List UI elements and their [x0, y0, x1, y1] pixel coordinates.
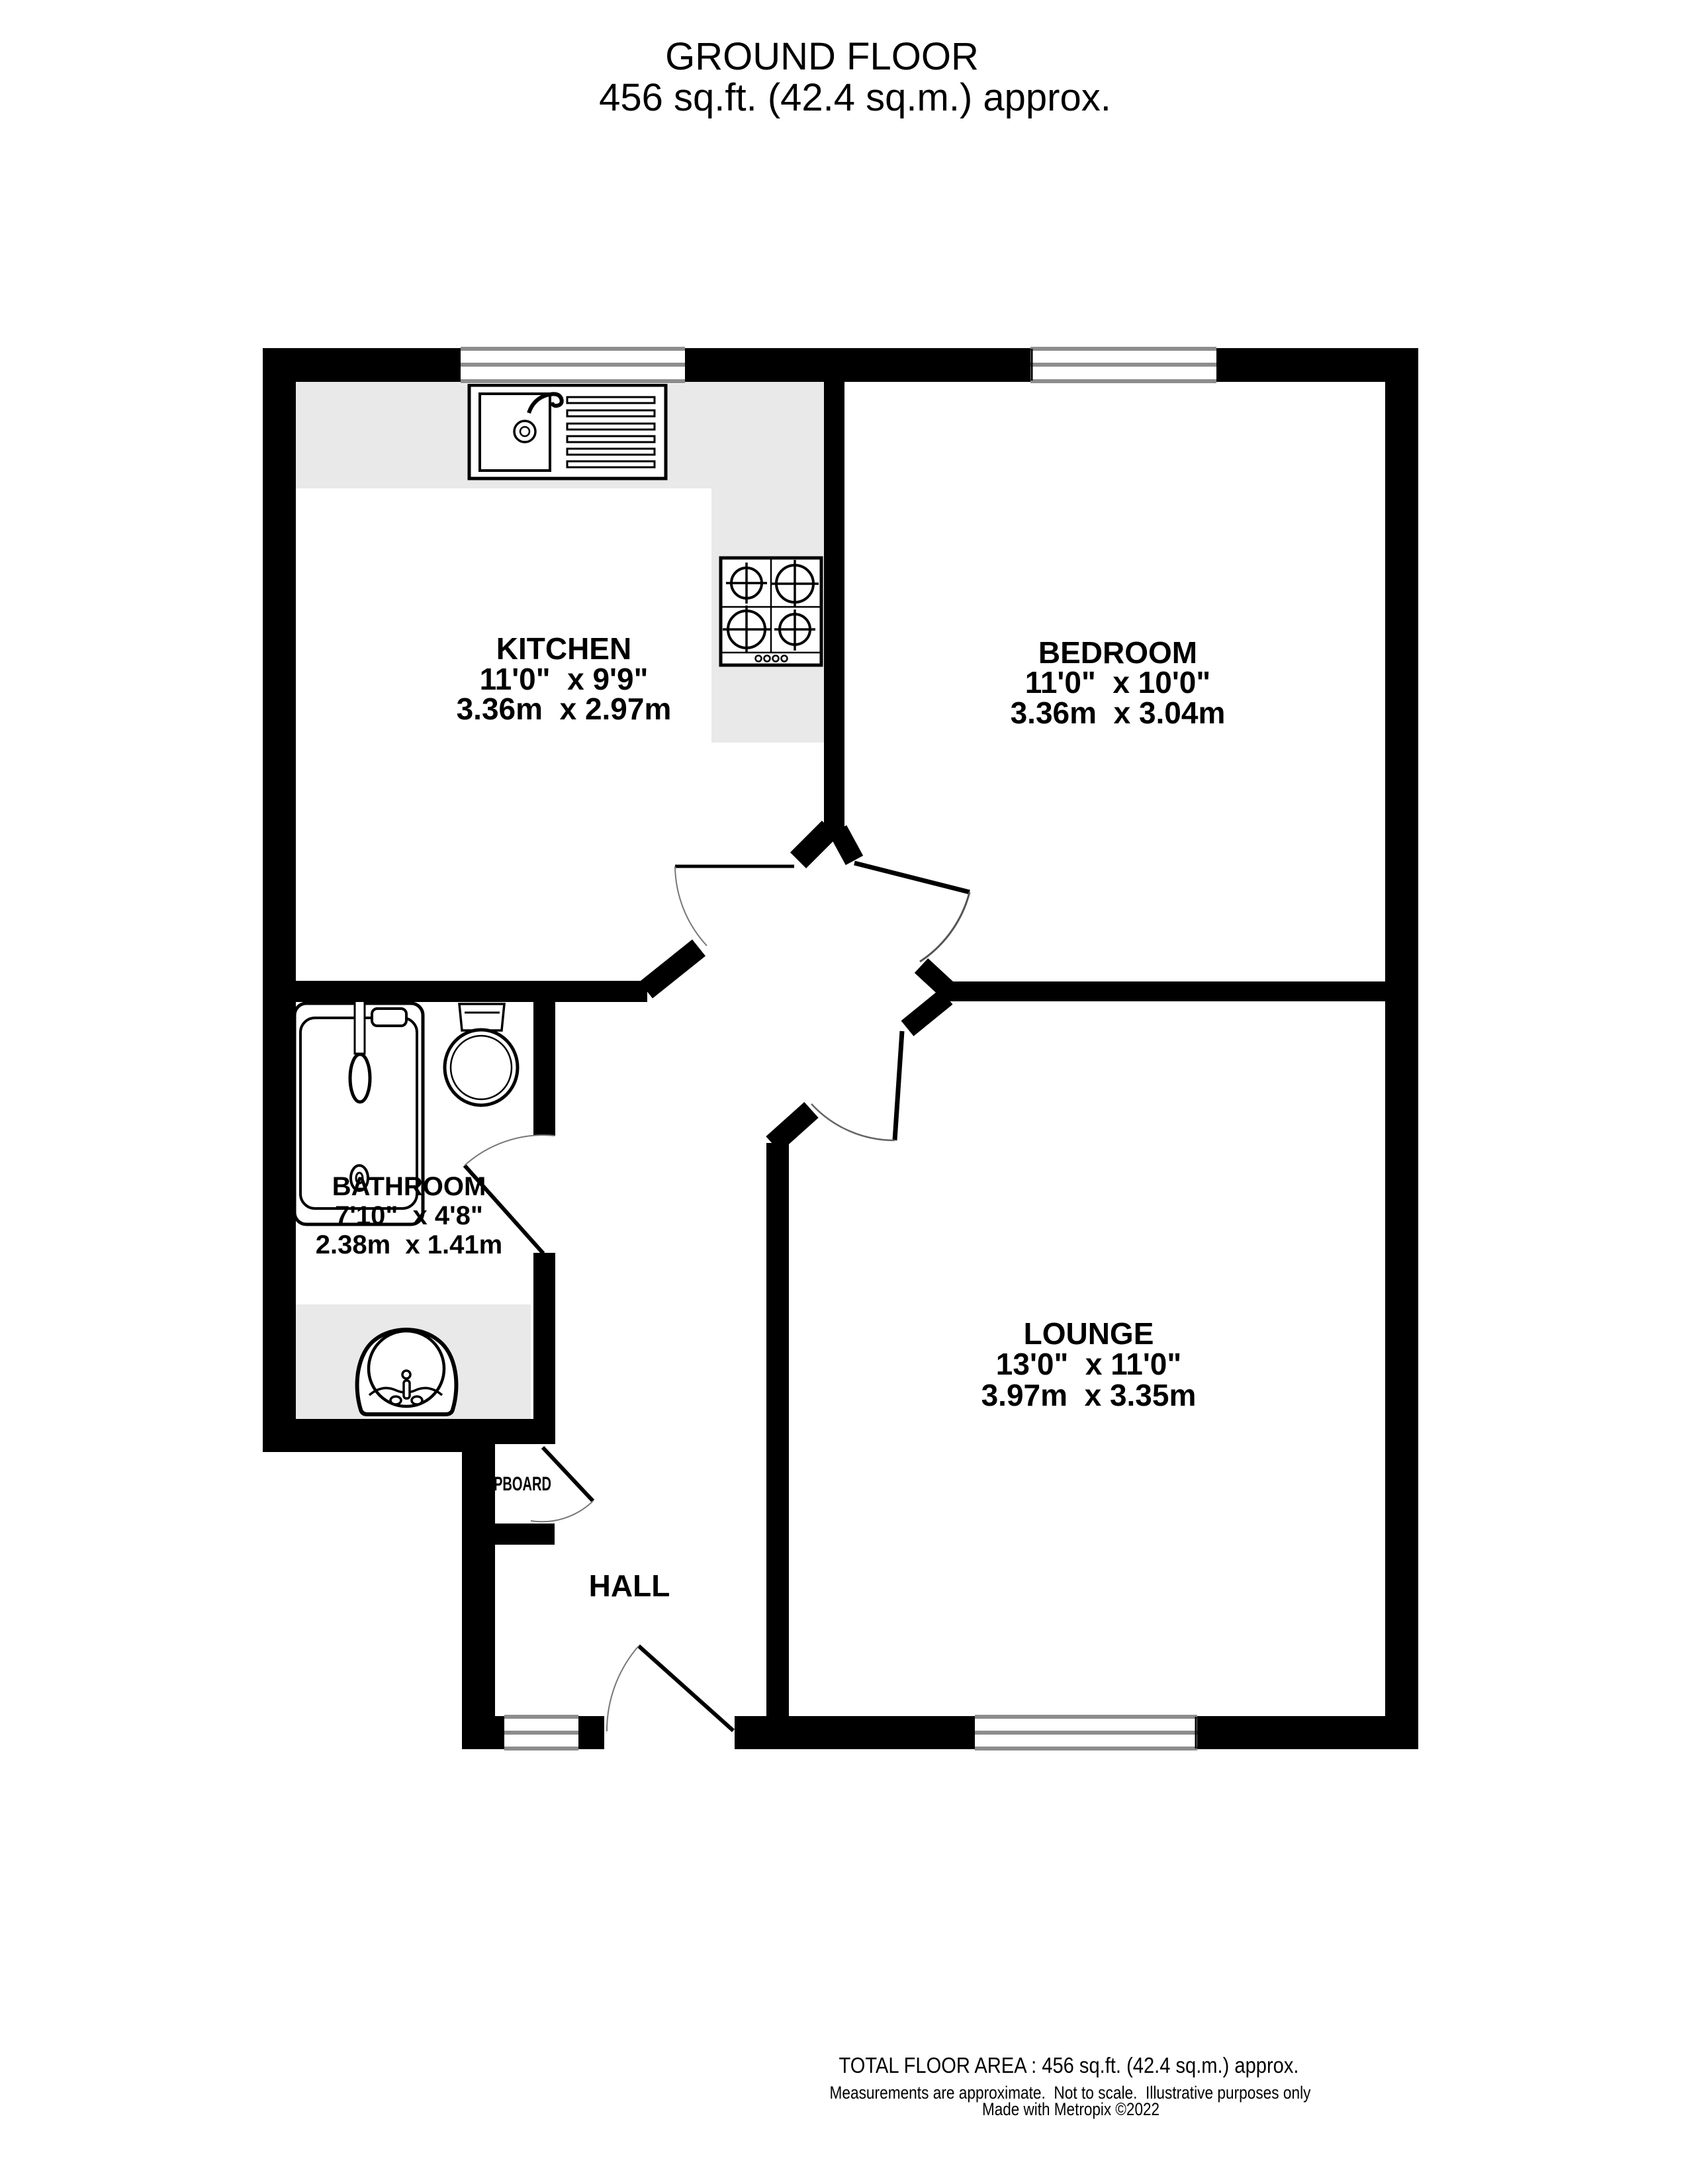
svg-text:Made with Metropix ©2022: Made with Metropix ©2022 — [982, 2099, 1159, 2119]
svg-text:3.36m x 2.97m: 3.36m x 2.97m — [457, 692, 672, 726]
svg-text:BATHROOM: BATHROOM — [332, 1172, 486, 1201]
svg-text:HALL: HALL — [589, 1569, 670, 1603]
svg-text:PBOARD: PBOARD — [494, 1473, 551, 1495]
svg-text:7'10" x 4'8": 7'10" x 4'8" — [335, 1201, 483, 1230]
svg-text:13'0" x 11'0": 13'0" x 11'0" — [996, 1347, 1181, 1381]
svg-text:TOTAL FLOOR AREA : 456 sq.ft.: TOTAL FLOOR AREA : 456 sq.ft. (42.4 sq.m… — [839, 2053, 1299, 2077]
svg-text:456 sq.ft. (42.4 sq.m.) approx: 456 sq.ft. (42.4 sq.m.) approx. — [599, 76, 1111, 119]
svg-text:3.97m x 3.35m: 3.97m x 3.35m — [981, 1378, 1197, 1412]
svg-text:GROUND FLOOR: GROUND FLOOR — [665, 35, 979, 78]
svg-text:11'0" x 10'0": 11'0" x 10'0" — [1025, 665, 1210, 700]
svg-text:KITCHEN: KITCHEN — [496, 631, 631, 666]
svg-text:3.36m x 3.04m: 3.36m x 3.04m — [1011, 696, 1226, 730]
svg-text:LOUNGE: LOUNGE — [1024, 1316, 1154, 1351]
svg-text:2.38m x 1.41m: 2.38m x 1.41m — [316, 1230, 502, 1259]
